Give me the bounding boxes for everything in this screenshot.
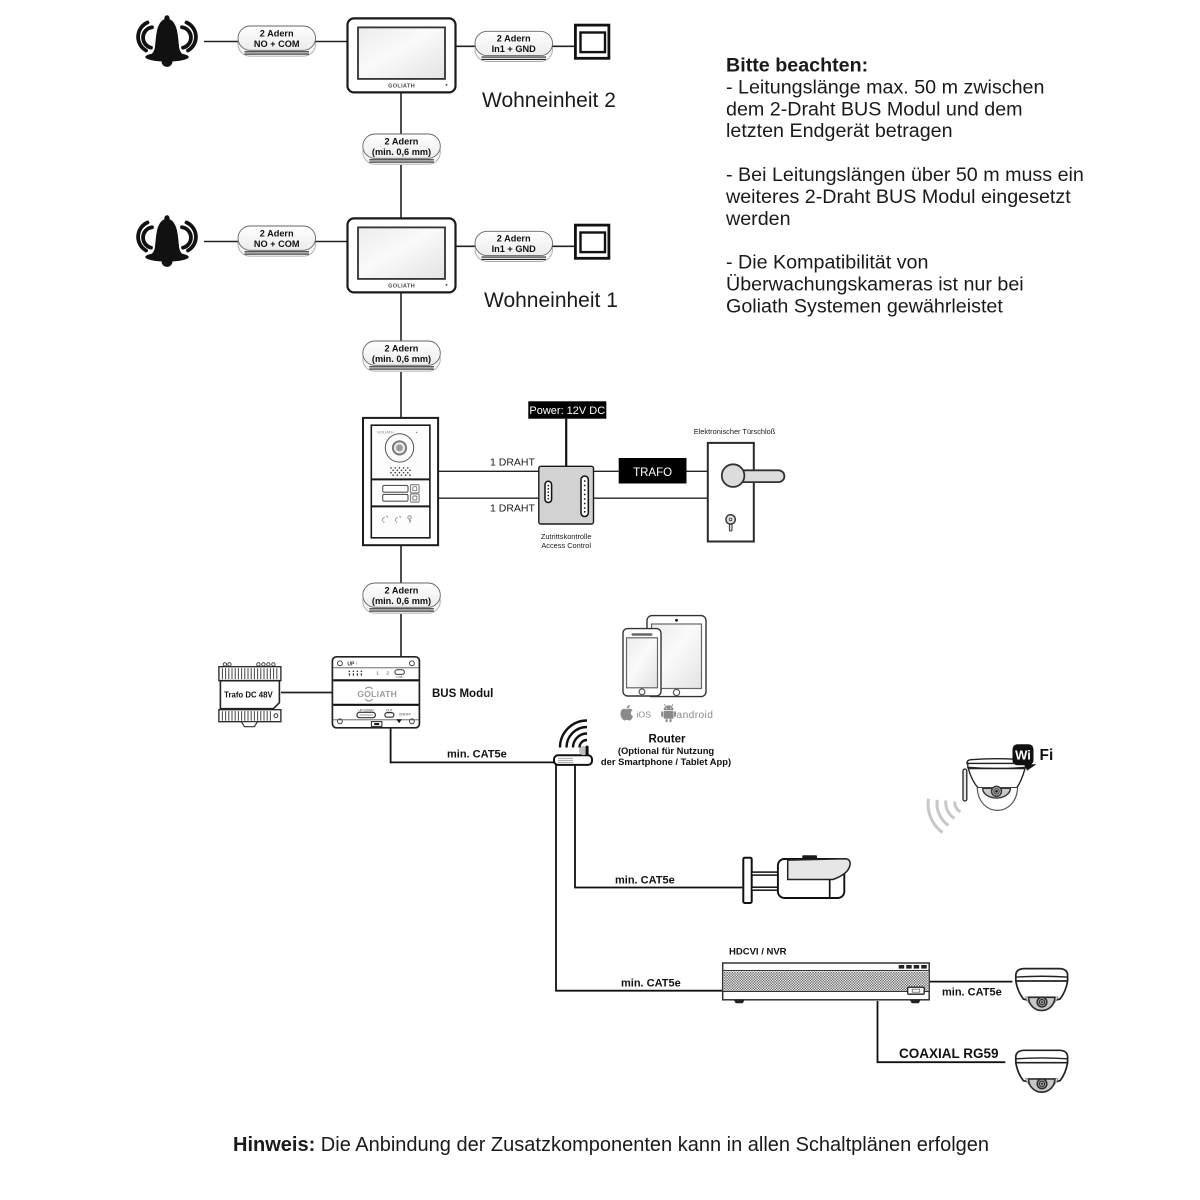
svg-text:Router: Router [648,734,686,746]
svg-text:2 Adern: 2 Adern [385,136,419,146]
svg-text:BUS Modul: BUS Modul [432,688,493,700]
svg-text:2 Adern: 2 Adern [260,228,294,238]
svg-text:Zutrittskontrolle: Zutrittskontrolle [541,532,592,541]
svg-text:GOLIATH: GOLIATH [357,689,397,699]
svg-text:dem 2-Draht BUS Modul und dem: dem 2-Draht BUS Modul und dem [726,98,1023,120]
svg-text:NO + COM: NO + COM [254,239,300,249]
svg-text:2 Adern: 2 Adern [497,34,531,44]
svg-text:- Bei Leitungslängen über 50 m: - Bei Leitungslängen über 50 m muss ein [726,164,1084,186]
svg-text:Bitte beachten:: Bitte beachten: [726,55,868,77]
svg-text:(Optional für Nutzung: (Optional für Nutzung [618,745,715,756]
svg-text:Überwachungskameras ist nur be: Überwachungskameras ist nur bei [726,274,1024,296]
svg-text:ON/OFF: ON/OFF [399,712,411,716]
svg-text:Wohneinheit 2: Wohneinheit 2 [482,89,616,112]
svg-text:- Leitungslänge max. 50 m zwis: - Leitungslänge max. 50 m zwischen [726,76,1044,98]
svg-text:android: android [677,710,714,721]
svg-text:letzten Endgerät betragen: letzten Endgerät betragen [726,120,953,142]
svg-text:1 DRAHT: 1 DRAHT [490,503,536,515]
svg-text:min. CAT5e: min. CAT5e [615,875,675,887]
svg-text:2 Adern: 2 Adern [497,234,531,244]
svg-text:UP ↑: UP ↑ [347,661,358,667]
svg-text:Hinweis: Die Anbindung der Zus: Hinweis: Die Anbindung der Zusatzkompone… [233,1134,989,1156]
svg-text:COAXIAL RG59: COAXIAL RG59 [899,1046,999,1061]
svg-text:2 Adern: 2 Adern [260,28,294,38]
svg-text:In1 + GND: In1 + GND [492,44,537,54]
svg-text:USB: USB [396,675,402,679]
svg-text:OUT: OUT [386,708,393,712]
svg-text:werden: werden [725,208,791,230]
svg-text:min. CAT5e: min. CAT5e [621,978,681,990]
svg-text:2 Adern: 2 Adern [385,343,419,353]
svg-text:TRAFO: TRAFO [633,467,672,479]
svg-text:- Die Kompatibilität von: - Die Kompatibilität von [726,252,928,274]
svg-text:min. CAT5e: min. CAT5e [942,987,1002,999]
svg-text:min. CAT5e: min. CAT5e [447,749,507,761]
svg-text:weiteres 2-Draht BUS Modul ein: weiteres 2-Draht BUS Modul eingesetzt [725,186,1071,208]
svg-text:HDCVI / NVR: HDCVI / NVR [729,947,787,958]
svg-text:2 Adern: 2 Adern [385,585,419,595]
svg-text:Fi: Fi [1040,747,1054,764]
svg-text:Power: 12V DC: Power: 12V DC [529,405,605,417]
svg-text:Access Control: Access Control [541,541,591,550]
svg-text:NO + COM: NO + COM [254,39,300,49]
svg-text:1 DRAHT: 1 DRAHT [490,457,536,469]
svg-text:iOS: iOS [637,710,652,720]
svg-text:In1 + GND: In1 + GND [492,244,537,254]
svg-text:(min. 0,6 mm): (min. 0,6 mm) [372,596,431,606]
svg-text:Elektronischer Türschloß: Elektronischer Türschloß [694,427,776,436]
svg-text:Wi: Wi [1015,747,1031,762]
svg-text:Trafo DC 48V: Trafo DC 48V [224,691,273,700]
svg-text:Wohneinheit 1: Wohneinheit 1 [484,289,618,312]
svg-text:Goliath Systemen gewährleistet: Goliath Systemen gewährleistet [726,295,1003,317]
svg-text:(min. 0,6 mm): (min. 0,6 mm) [372,354,431,364]
svg-text:(min. 0,6 mm): (min. 0,6 mm) [372,147,431,157]
svg-text:GOLIATH: GOLIATH [377,430,394,434]
svg-text:der Smartphone / Tablet App): der Smartphone / Tablet App) [601,756,731,767]
